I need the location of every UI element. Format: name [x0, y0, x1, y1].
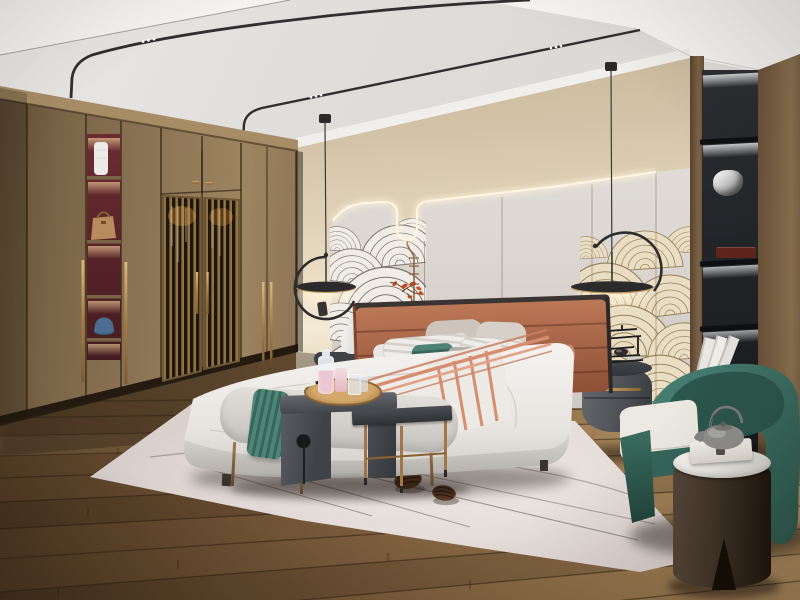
gray-teapot — [0, 0, 800, 600]
bedroom-scene — [0, 0, 800, 600]
